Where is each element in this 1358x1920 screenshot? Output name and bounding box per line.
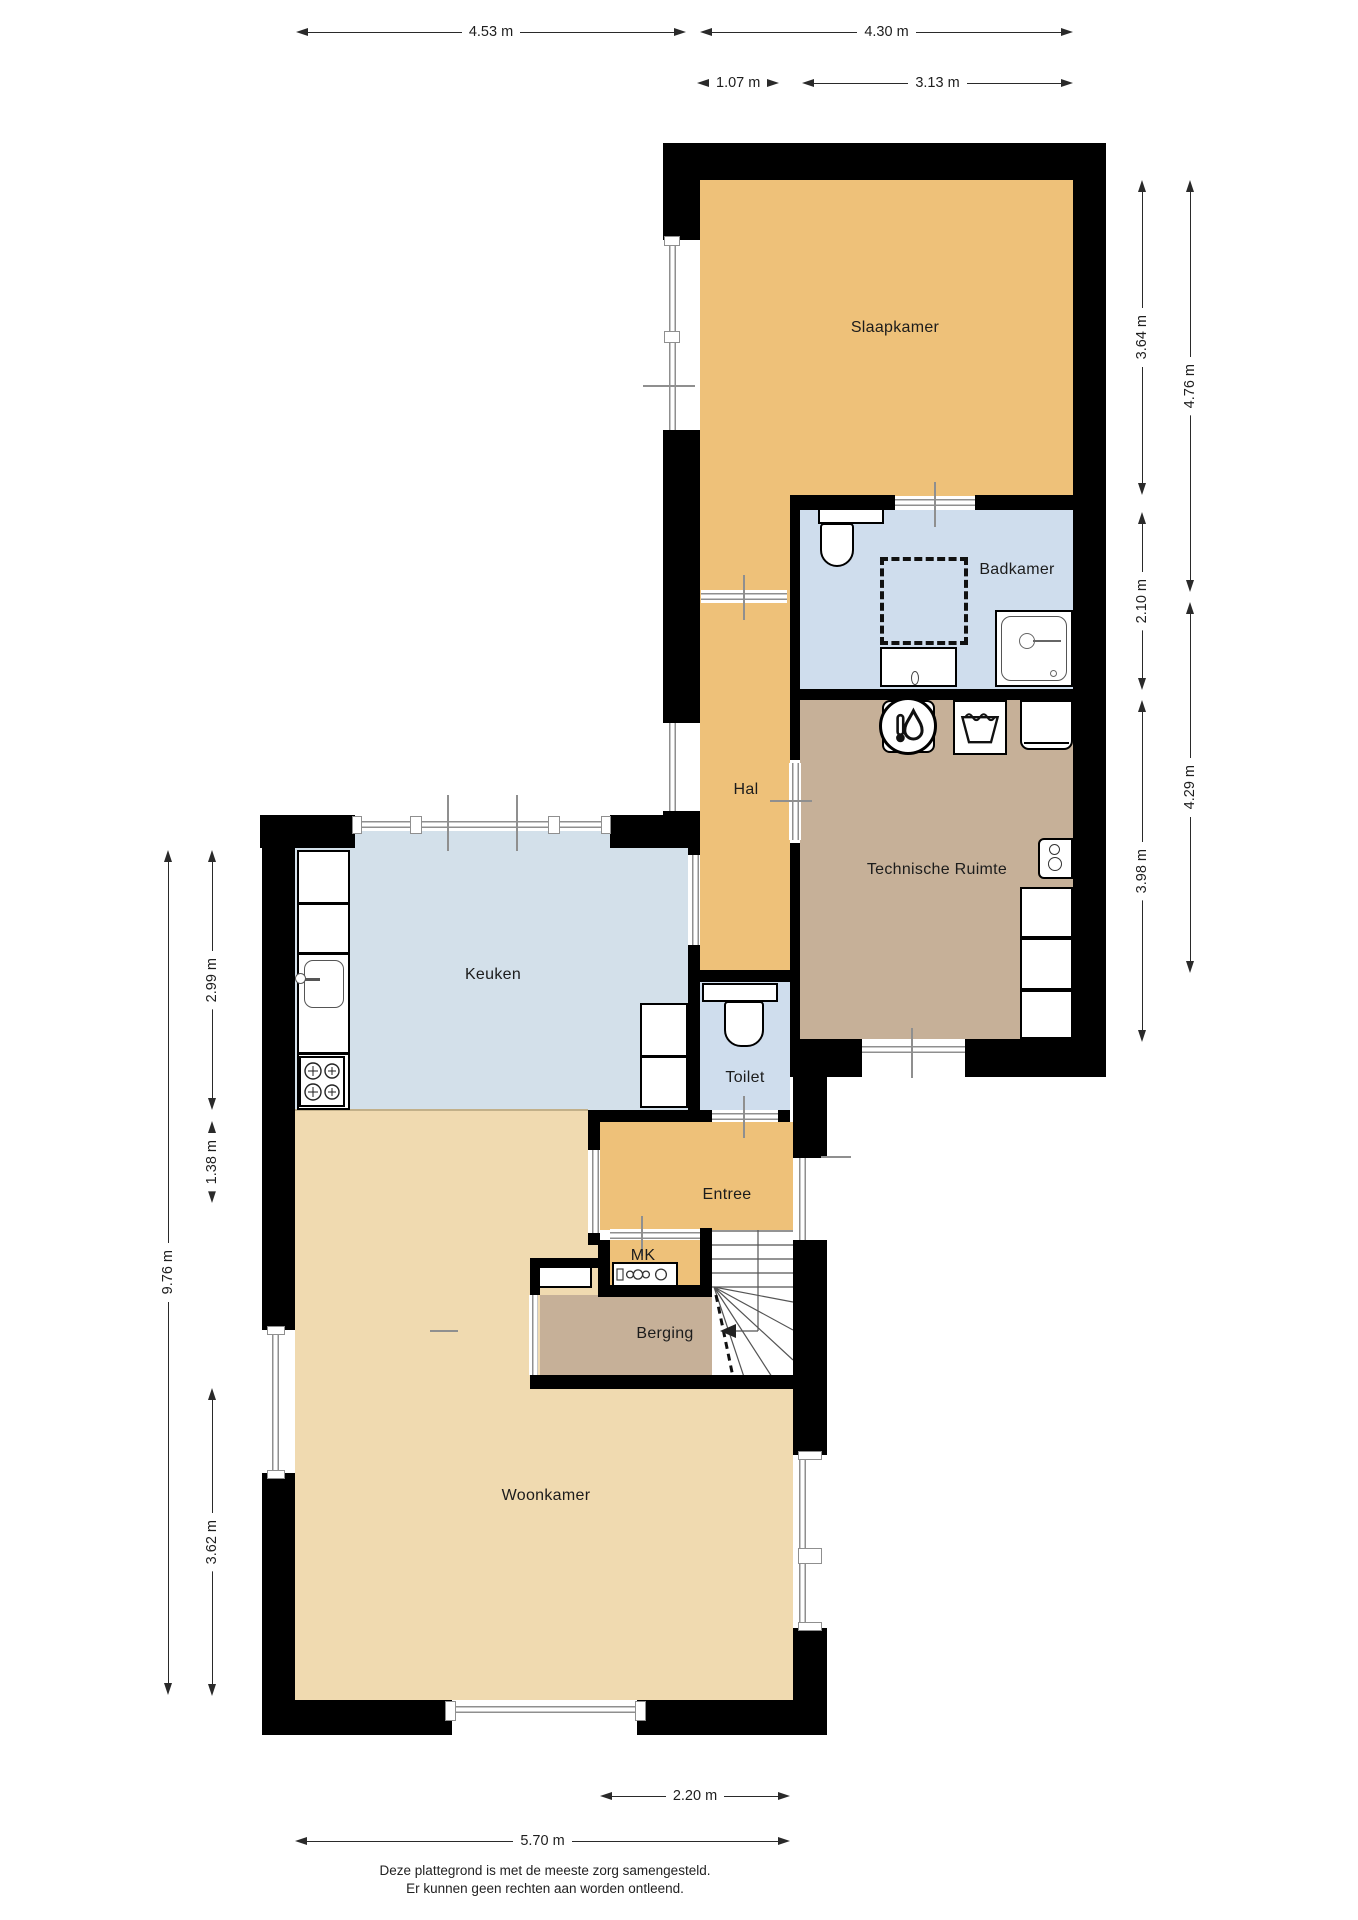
boiler-circle-icon [879, 697, 937, 755]
door-tick [743, 1096, 745, 1138]
window-cap [352, 816, 362, 834]
room-label-woonkamer: Woonkamer [502, 1487, 591, 1505]
dimension-label: 1.07 m [709, 75, 767, 91]
dimension-label: 4.30 m [857, 24, 915, 40]
window-keuken-top [355, 818, 610, 831]
kitchen-sink-icon [304, 960, 344, 1008]
dimension-top-4: 3.13 m [802, 75, 1073, 91]
wall-lower-right-a [793, 1077, 827, 1158]
wall-slaapkamer-badkamer-a [790, 495, 895, 510]
glass-keuken-hal [689, 855, 699, 945]
door-hal-left [666, 723, 679, 811]
dimension-top-1: 4.53 m [296, 24, 686, 40]
arrow-left-icon [802, 79, 814, 87]
room-label-toilet: Toilet [725, 1069, 764, 1087]
laundry-tub-icon [955, 702, 1005, 753]
arrow-left-icon [700, 28, 712, 36]
arrow-up-icon [208, 1388, 216, 1400]
socket-circle-bottom-icon [1048, 857, 1062, 871]
room-fill-woonkamer-right [588, 1389, 793, 1700]
dimension-label: 3.62 m [204, 1513, 220, 1571]
arrow-up-icon [208, 1121, 216, 1133]
door-technische-exterior [862, 1043, 965, 1056]
arrow-down-icon [1138, 1030, 1146, 1042]
dimension-bottom-1: 2.20 m [600, 1788, 790, 1804]
room-fill-keuken-window-strip [355, 830, 610, 848]
dimension-right-1: 3.64 m [1134, 180, 1150, 495]
door-entree-front [796, 1158, 822, 1240]
door-tick [911, 1028, 913, 1078]
wc-cistern-icon [702, 983, 778, 1002]
wall-toilet-left [688, 982, 700, 1122]
socket-circle-top-icon [1049, 844, 1060, 855]
wall-lower-right-c [793, 1628, 827, 1735]
arrow-down-icon [164, 1683, 172, 1695]
wall-toilet-top [688, 970, 790, 982]
door-toilet [712, 1110, 778, 1122]
arrow-down-icon [1138, 483, 1146, 495]
arrow-up-icon [1138, 512, 1146, 524]
wall-upper-left-c [663, 811, 700, 848]
arrow-up-icon [164, 850, 172, 862]
kitchen-tall-cabinet-1 [640, 1003, 688, 1057]
arrow-up-icon [1186, 180, 1194, 192]
arrow-right-icon [674, 28, 686, 36]
window-tick [430, 1330, 458, 1332]
dimension-label: 4.29 m [1182, 758, 1198, 816]
arrow-up-icon [1186, 602, 1194, 614]
arrow-down-icon [208, 1684, 216, 1696]
room-fill-entree [600, 1122, 793, 1230]
dimension-top-3: 1.07 m [697, 75, 790, 91]
dimension-label: 4.53 m [462, 24, 520, 40]
room-label-slaapkamer: Slaapkamer [851, 319, 939, 337]
arrow-right-icon [767, 79, 779, 87]
wall-stairs-pier [700, 1228, 712, 1297]
arrow-down-icon [208, 1098, 216, 1110]
room-label-keuken: Keuken [465, 966, 521, 984]
door-tick [770, 800, 812, 802]
toilet-bowl-icon [820, 523, 854, 567]
arrow-down-icon [1186, 961, 1194, 973]
window-tick [516, 795, 518, 851]
dimension-label: 5.70 m [513, 1833, 571, 1849]
dimension-left-3: 9.76 m [160, 850, 176, 1695]
window-mullion [798, 1548, 822, 1564]
arrow-left-icon [295, 1837, 307, 1845]
electric-meter-box-icon [612, 1262, 678, 1287]
meter-dials-icon [614, 1264, 676, 1285]
wall-lower-left-b [262, 1473, 295, 1735]
berging-cupboard [538, 1266, 592, 1288]
dimension-left-2: 1.38 m [204, 1121, 220, 1238]
dimension-label: 2.10 m [1134, 572, 1150, 630]
cabinet-1-icon [1020, 887, 1073, 938]
dimension-right-3: 3.98 m [1134, 700, 1150, 1042]
door-tick [821, 1156, 851, 1158]
wall-keuken-hal-b [688, 945, 700, 982]
wall-mk-bottom [598, 1285, 712, 1297]
kitchen-cabinet-1 [297, 850, 350, 904]
window-cap [267, 1326, 285, 1335]
kitchen-tall-cabinet-2 [640, 1056, 688, 1108]
dimension-label: 2.20 m [666, 1788, 724, 1804]
stairs-treads-icon [712, 1230, 793, 1377]
window-mullion [548, 816, 560, 834]
dimension-label: 9.76 m [160, 1243, 176, 1301]
disclaimer: Deze plattegrond is met de meeste zorg s… [95, 1862, 995, 1898]
dryer-base-line [1024, 742, 1069, 744]
boiler-thermometer-icon [882, 700, 934, 752]
arrow-down-icon [208, 1191, 216, 1203]
shower-handle-icon [1033, 640, 1061, 642]
wall-berging-top-corner [530, 1258, 540, 1295]
wall-upper-bottom-b [965, 1039, 1106, 1077]
window-tick [447, 795, 449, 851]
arrow-left-icon [697, 79, 709, 87]
dimension-right-5: 4.29 m [1182, 602, 1198, 973]
shower-knob-icon [1050, 670, 1057, 677]
room-fill-woonkamer-left [295, 1110, 588, 1700]
washbasin-tap-icon [911, 671, 919, 685]
wall-lower-bottom-a [262, 1700, 452, 1735]
window-woonkamer-right [796, 1455, 822, 1628]
window-mullion [664, 331, 680, 343]
door-tick [743, 575, 745, 620]
room-label-mk: MK [631, 1247, 656, 1265]
window-cap [267, 1470, 285, 1479]
gas-hob-icon [299, 1056, 345, 1107]
disclaimer-line-2: Er kunnen geen rechten aan worden ontlee… [95, 1880, 995, 1898]
opening-entree-woonkamer [589, 1150, 599, 1233]
arrow-down-icon [1138, 678, 1146, 690]
wall-lower-right-b [793, 1240, 827, 1455]
hob-burners-icon [301, 1058, 343, 1105]
shower-area-dashed-icon [880, 557, 968, 645]
room-label-berging: Berging [636, 1325, 693, 1343]
washing-machine-icon [953, 700, 1007, 755]
window-tick [643, 385, 695, 387]
door-mk [610, 1229, 700, 1240]
wall-keuken-top-b [610, 815, 663, 848]
wc-bowl-icon [724, 1001, 764, 1047]
dimension-label: 3.13 m [908, 75, 966, 91]
glass-berging-left [529, 1295, 538, 1375]
arrow-right-icon [778, 1837, 790, 1845]
wall-hal-right-b [790, 843, 800, 1039]
arrow-up-icon [1138, 180, 1146, 192]
dimension-label: 3.64 m [1134, 308, 1150, 366]
window-cap [445, 1701, 456, 1721]
cabinet-3-icon [1020, 990, 1073, 1039]
window-woonkamer-bottom [452, 1703, 637, 1718]
wall-lower-left-a [262, 815, 295, 1330]
kitchen-tap-knob-icon [295, 973, 306, 984]
wall-keuken-hal-a [688, 848, 700, 855]
window-cap [664, 236, 680, 246]
arrow-up-icon [208, 850, 216, 862]
room-label-technische-ruimte: Technische Ruimte [867, 861, 1007, 879]
wall-entree-left-a [588, 1110, 600, 1150]
window-cap [798, 1451, 822, 1460]
wall-berging-bottom [530, 1375, 793, 1389]
door-tick [934, 482, 936, 527]
arrow-down-icon [1186, 580, 1194, 592]
wall-slaapkamer-badkamer-b [975, 495, 1073, 510]
arrow-left-icon [600, 1792, 612, 1800]
arrow-right-icon [1061, 79, 1073, 87]
window-woonkamer-left [269, 1330, 284, 1473]
dimension-label: 4.76 m [1182, 357, 1198, 415]
wall-entree-top [600, 1110, 688, 1122]
wall-upper-left-b [663, 430, 700, 723]
shower-tray-inner [1001, 616, 1067, 681]
disclaimer-line-1: Deze plattegrond is met de meeste zorg s… [95, 1862, 995, 1880]
floor-plan: Slaapkamer Badkamer Hal Technische Ruimt… [0, 0, 1358, 1920]
arrow-left-icon [296, 28, 308, 36]
wall-upper-left-a [663, 180, 700, 240]
wall-hal-right-a [790, 510, 800, 760]
dimension-right-2: 2.10 m [1134, 512, 1150, 690]
wall-upper-right [1073, 180, 1106, 1077]
room-label-entree: Entree [703, 1186, 752, 1204]
dimension-bottom-2: 5.70 m [295, 1833, 790, 1849]
kitchen-cabinet-2 [297, 903, 350, 954]
wall-badkamer-technische [800, 689, 1073, 700]
room-fill-hal [700, 497, 790, 970]
wall-toilet-bottom-a [688, 1110, 712, 1122]
window-cap [635, 1701, 646, 1721]
wall-upper-bottom-a [790, 1039, 862, 1077]
room-fill-slaapkamer [700, 180, 1073, 497]
dimension-right-4: 4.76 m [1182, 180, 1198, 592]
arrow-right-icon [778, 1792, 790, 1800]
dimension-left-1: 2.99 m [204, 850, 220, 1110]
arrow-up-icon [1138, 700, 1146, 712]
room-label-hal: Hal [734, 781, 759, 799]
window-cap [798, 1622, 822, 1631]
wall-toilet-bottom-b [778, 1110, 790, 1122]
window-mullion [410, 816, 422, 834]
wall-top-upper [663, 143, 1106, 180]
dimension-label: 1.38 m [204, 1133, 220, 1191]
window-cap [601, 816, 611, 834]
room-label-badkamer: Badkamer [979, 561, 1054, 579]
dimension-label: 3.98 m [1134, 842, 1150, 900]
dimension-top-2: 4.30 m [700, 24, 1073, 40]
arrow-right-icon [1061, 28, 1073, 36]
dimension-left-4: 3.62 m [204, 1388, 220, 1696]
stairs [712, 1230, 793, 1377]
dimension-label: 2.99 m [204, 951, 220, 1009]
cabinet-2-icon [1020, 938, 1073, 990]
wall-berging-top [530, 1258, 600, 1268]
